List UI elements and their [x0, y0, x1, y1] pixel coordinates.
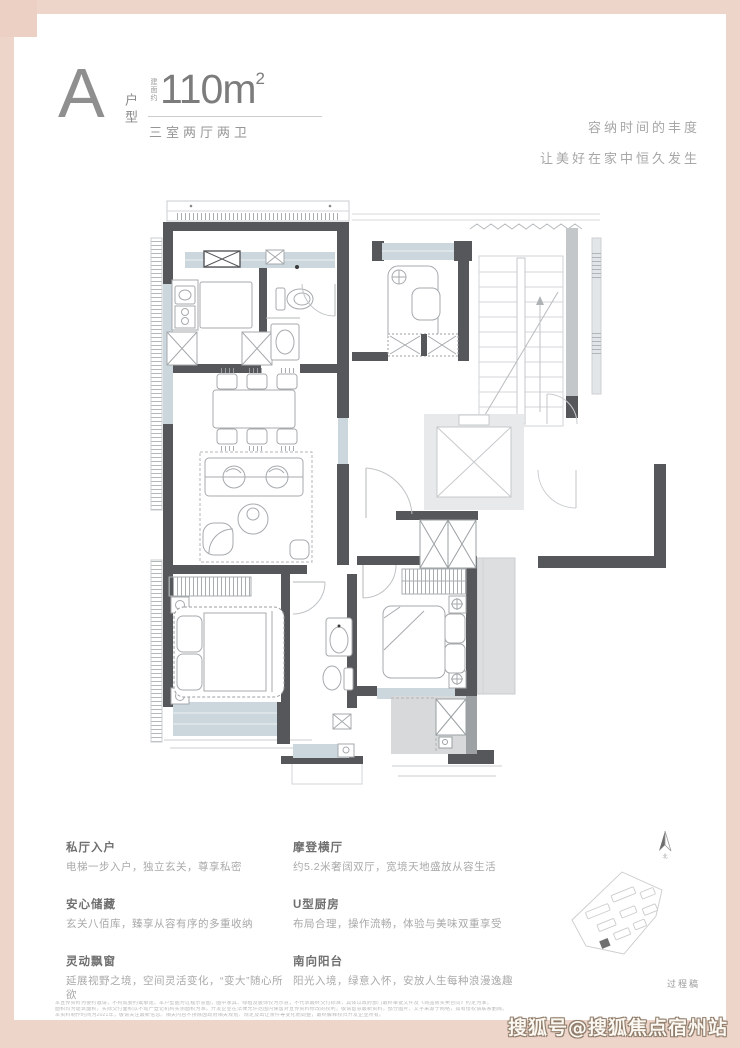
dining-area: [213, 368, 297, 451]
living-area: [200, 452, 312, 562]
features-left-column: 私厅入户 电梯一步入户，独立玄关，尊享私密 安心储藏 玄关八佰库，臻享从容有序的…: [66, 841, 291, 1026]
header-divider: [148, 116, 322, 117]
stairs: [479, 256, 563, 426]
elevator: [424, 414, 524, 510]
feature-desc: 延展视野之境，空间灵活变化，“变大”随心所欲: [66, 974, 291, 1002]
feature-desc: 约5.2米奢阔双厅，宽境天地盛放从容生活: [293, 860, 518, 874]
feature-title: U型厨房: [293, 898, 518, 912]
frame-corner-accent: [0, 0, 37, 37]
features-right-column: 摩登横厅 约5.2米奢阔双厅，宽境天地盛放从容生活 U型厨房 布局合理，操作流畅…: [293, 841, 518, 1012]
unit-type-letter: A: [58, 58, 103, 128]
north-arrow-icon: 北: [655, 829, 675, 859]
rooms-layout-label: 三室两厅两卫: [149, 122, 251, 141]
master-bedroom: [169, 577, 284, 704]
feature-title: 私厅入户: [66, 841, 291, 855]
feature-desc: 阳光入境，绿意入怀，安放人生每种浪漫逸趣: [293, 974, 518, 988]
tagline-line2: 让美好在家中恒久发生: [540, 143, 700, 174]
bathroom-2: [293, 582, 353, 690]
area-superscript: 2: [256, 69, 264, 88]
svg-text:北: 北: [662, 853, 667, 859]
area-value: 110m2: [160, 68, 264, 111]
feature-desc: 电梯一步入户，独立玄关，尊享私密: [66, 860, 291, 874]
frame-top: [0, 0, 740, 14]
feature-title: 南向阳台: [293, 955, 518, 969]
feature-title: 摩登横厅: [293, 841, 518, 855]
study: [388, 266, 458, 356]
feature-item: 南向阳台 阳光入境，绿意入怀，安放人生每种浪漫逸趣: [293, 955, 518, 988]
draft-version-label: 过程稿: [667, 977, 700, 990]
area-block: 建面约 110m2: [148, 68, 264, 111]
feature-title: 灵动飘窗: [66, 955, 291, 969]
feature-desc: 玄关八佰库，臻享从容有序的多重收纳: [66, 917, 291, 931]
siteplan-map: [568, 864, 680, 960]
watermark-text: 搜狐号@搜狐焦点宿州站: [508, 1013, 728, 1040]
feature-item: 摩登横厅 约5.2米奢阔双厅，宽境天地盛放从容生活: [293, 841, 518, 874]
feature-item: U型厨房 布局合理，操作流畅，体验与美味双重享受: [293, 898, 518, 931]
feature-title: 安心储藏: [66, 898, 291, 912]
feature-desc: 布局合理，操作流畅，体验与美味双重享受: [293, 917, 518, 931]
balcony: [391, 696, 466, 754]
floorplan-poster: A 户型 建面约 110m2 三室两厅两卫 容纳时间的丰度 让美好在家中恒久发生: [0, 0, 740, 1048]
feature-item: 私厅入户 电梯一步入户，独立玄关，尊享私密: [66, 841, 291, 874]
bedroom-3: [363, 565, 466, 688]
kitchen: [167, 280, 272, 365]
feature-item: 灵动飘窗 延展视野之境，空间灵活变化，“变大”随心所欲: [66, 955, 291, 1002]
feature-item: 安心储藏 玄关八佰库，臻享从容有序的多重收纳: [66, 898, 291, 931]
tagline: 容纳时间的丰度 让美好在家中恒久发生: [540, 112, 700, 174]
unit-type-label: 户型: [121, 93, 140, 127]
floorplan-drawing: [143, 196, 668, 796]
frame-right: [726, 0, 740, 1048]
range-hood: [204, 251, 240, 267]
area-prefix: 建面约: [148, 78, 158, 102]
frame-left: [0, 0, 14, 1048]
tagline-line1: 容纳时间的丰度: [540, 112, 700, 143]
